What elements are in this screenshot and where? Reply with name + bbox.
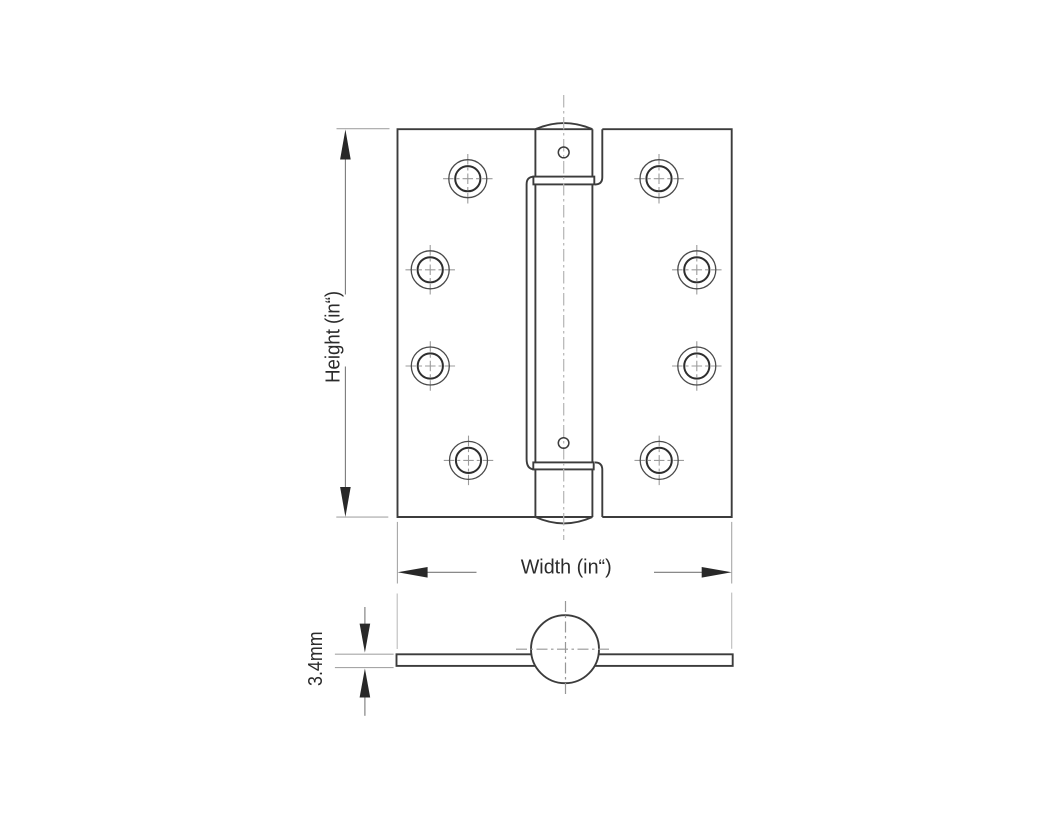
svg-text:3.4mm: 3.4mm (305, 631, 327, 686)
svg-text:Height (in“): Height (in“) (322, 291, 344, 383)
svg-text:Width (in“): Width (in“) (521, 556, 612, 578)
